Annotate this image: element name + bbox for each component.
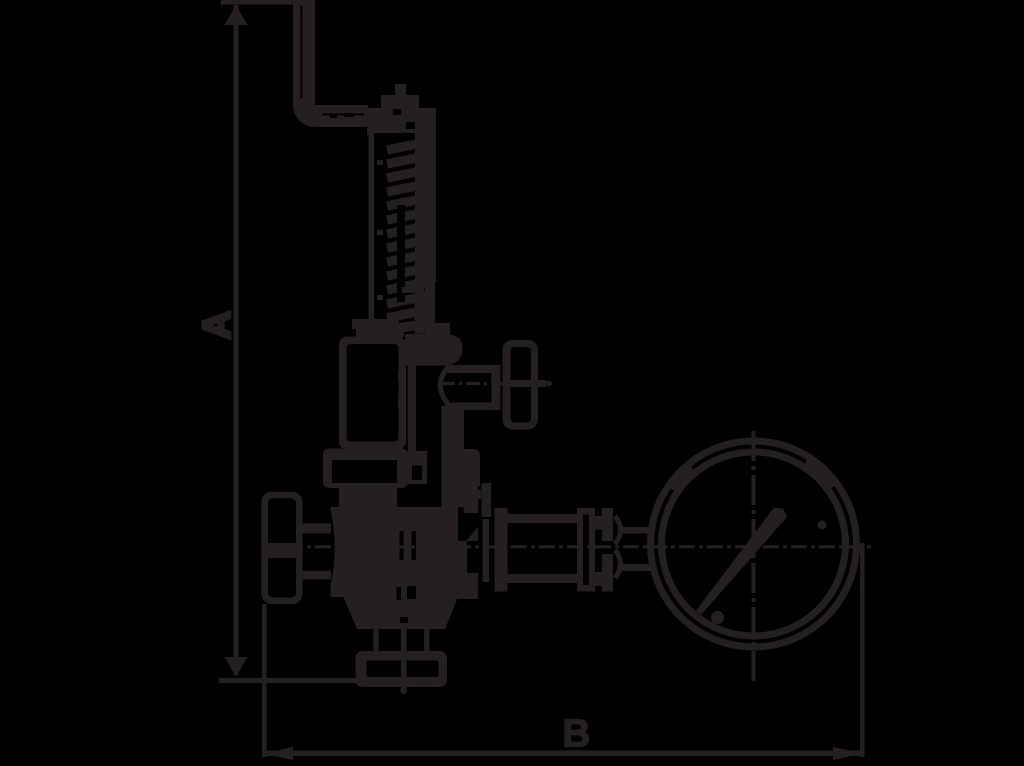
- svg-text:A: A: [196, 311, 239, 339]
- svg-text:B: B: [563, 713, 591, 756]
